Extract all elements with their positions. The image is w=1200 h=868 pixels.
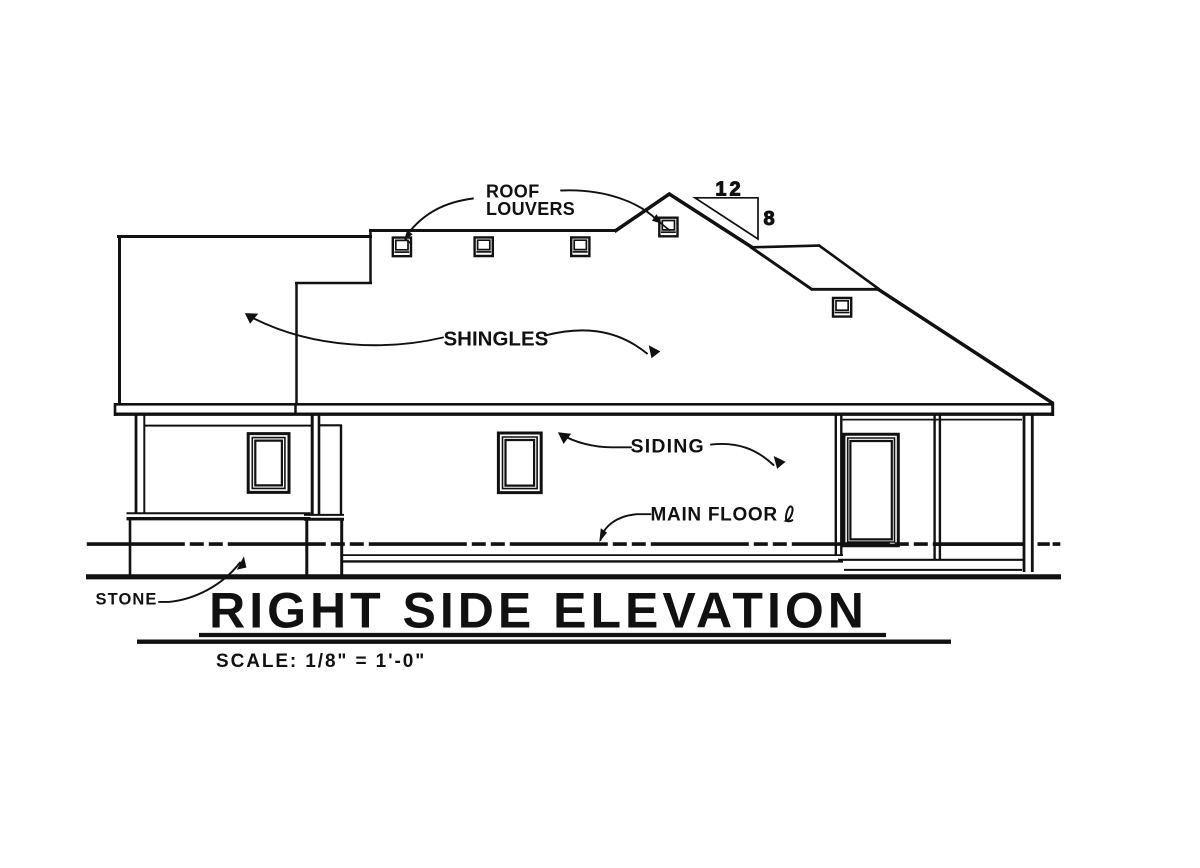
- svg-text:SIDING: SIDING: [631, 436, 705, 458]
- svg-text:MAIN FLOOR: MAIN FLOOR: [651, 505, 778, 526]
- svg-text:12: 12: [715, 179, 743, 201]
- svg-text:LOUVERS: LOUVERS: [486, 199, 575, 219]
- svg-text:SHINGLES: SHINGLES: [444, 328, 549, 351]
- svg-text:8: 8: [763, 208, 774, 230]
- svg-text:RIGHT SIDE ELEVATION: RIGHT SIDE ELEVATION: [209, 583, 868, 639]
- svg-text:SCALE: 1/8" = 1'-0": SCALE: 1/8" = 1'-0": [216, 651, 426, 672]
- svg-text:STONE: STONE: [96, 591, 158, 609]
